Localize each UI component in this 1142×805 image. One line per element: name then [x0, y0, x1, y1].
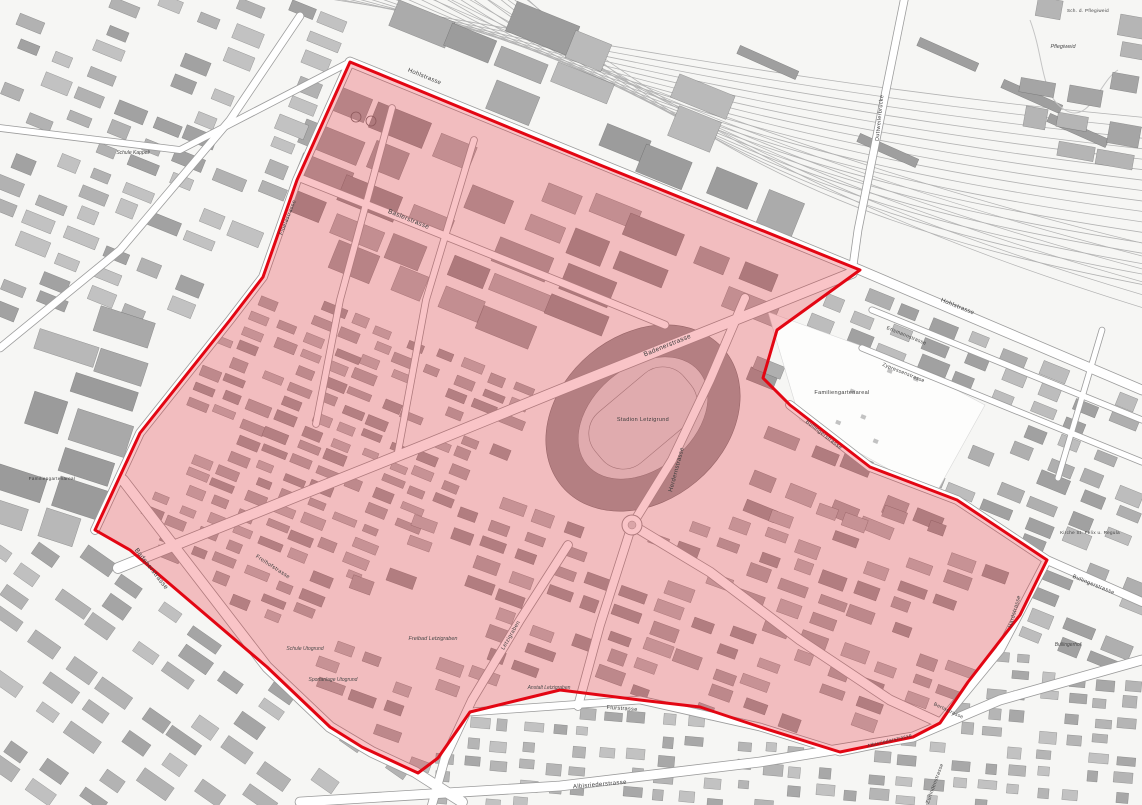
- map-label-kirche-st-felix-u-regula: Kirche St. Felix u. Regula: [1060, 530, 1120, 535]
- map-label-pflegiweid: Pflegiweid: [1050, 44, 1076, 50]
- map-label-bullingerhof: Bullingerhof: [1055, 642, 1082, 648]
- map-label-schule-kappeli: Schule Kappeli: [116, 150, 150, 156]
- map-label-stadion-letzigrund: Stadion Letzigrund: [617, 417, 669, 423]
- map-label-flurstrasse: Flurstrasse: [606, 705, 637, 713]
- city-map-canvas[interactable]: Stadion LetzigrundBadenerstrasseBadeners…: [0, 0, 1142, 805]
- map-label-anstalt-letzigraben: Anstalt Letzigraben: [527, 685, 571, 691]
- map-label-sportanlage-utogrund: Sportanlage Utogrund: [309, 677, 358, 683]
- map-label-familiengartenareal-1: Familiengartenareal: [814, 390, 869, 396]
- map-label-familiengartenareal-2: Familiengartenareal: [29, 476, 75, 481]
- map-viewport[interactable]: Stadion LetzigrundBadenerstrasseBadeners…: [0, 0, 1142, 805]
- map-label-freibad-letzigraben: Freibad Letzigraben: [409, 636, 458, 642]
- map-label-sch-d-pflegiweid: Sch. d. Pflegiweid: [1067, 8, 1109, 13]
- map-label-schule-utogrund: Schule Utogrund: [286, 646, 323, 652]
